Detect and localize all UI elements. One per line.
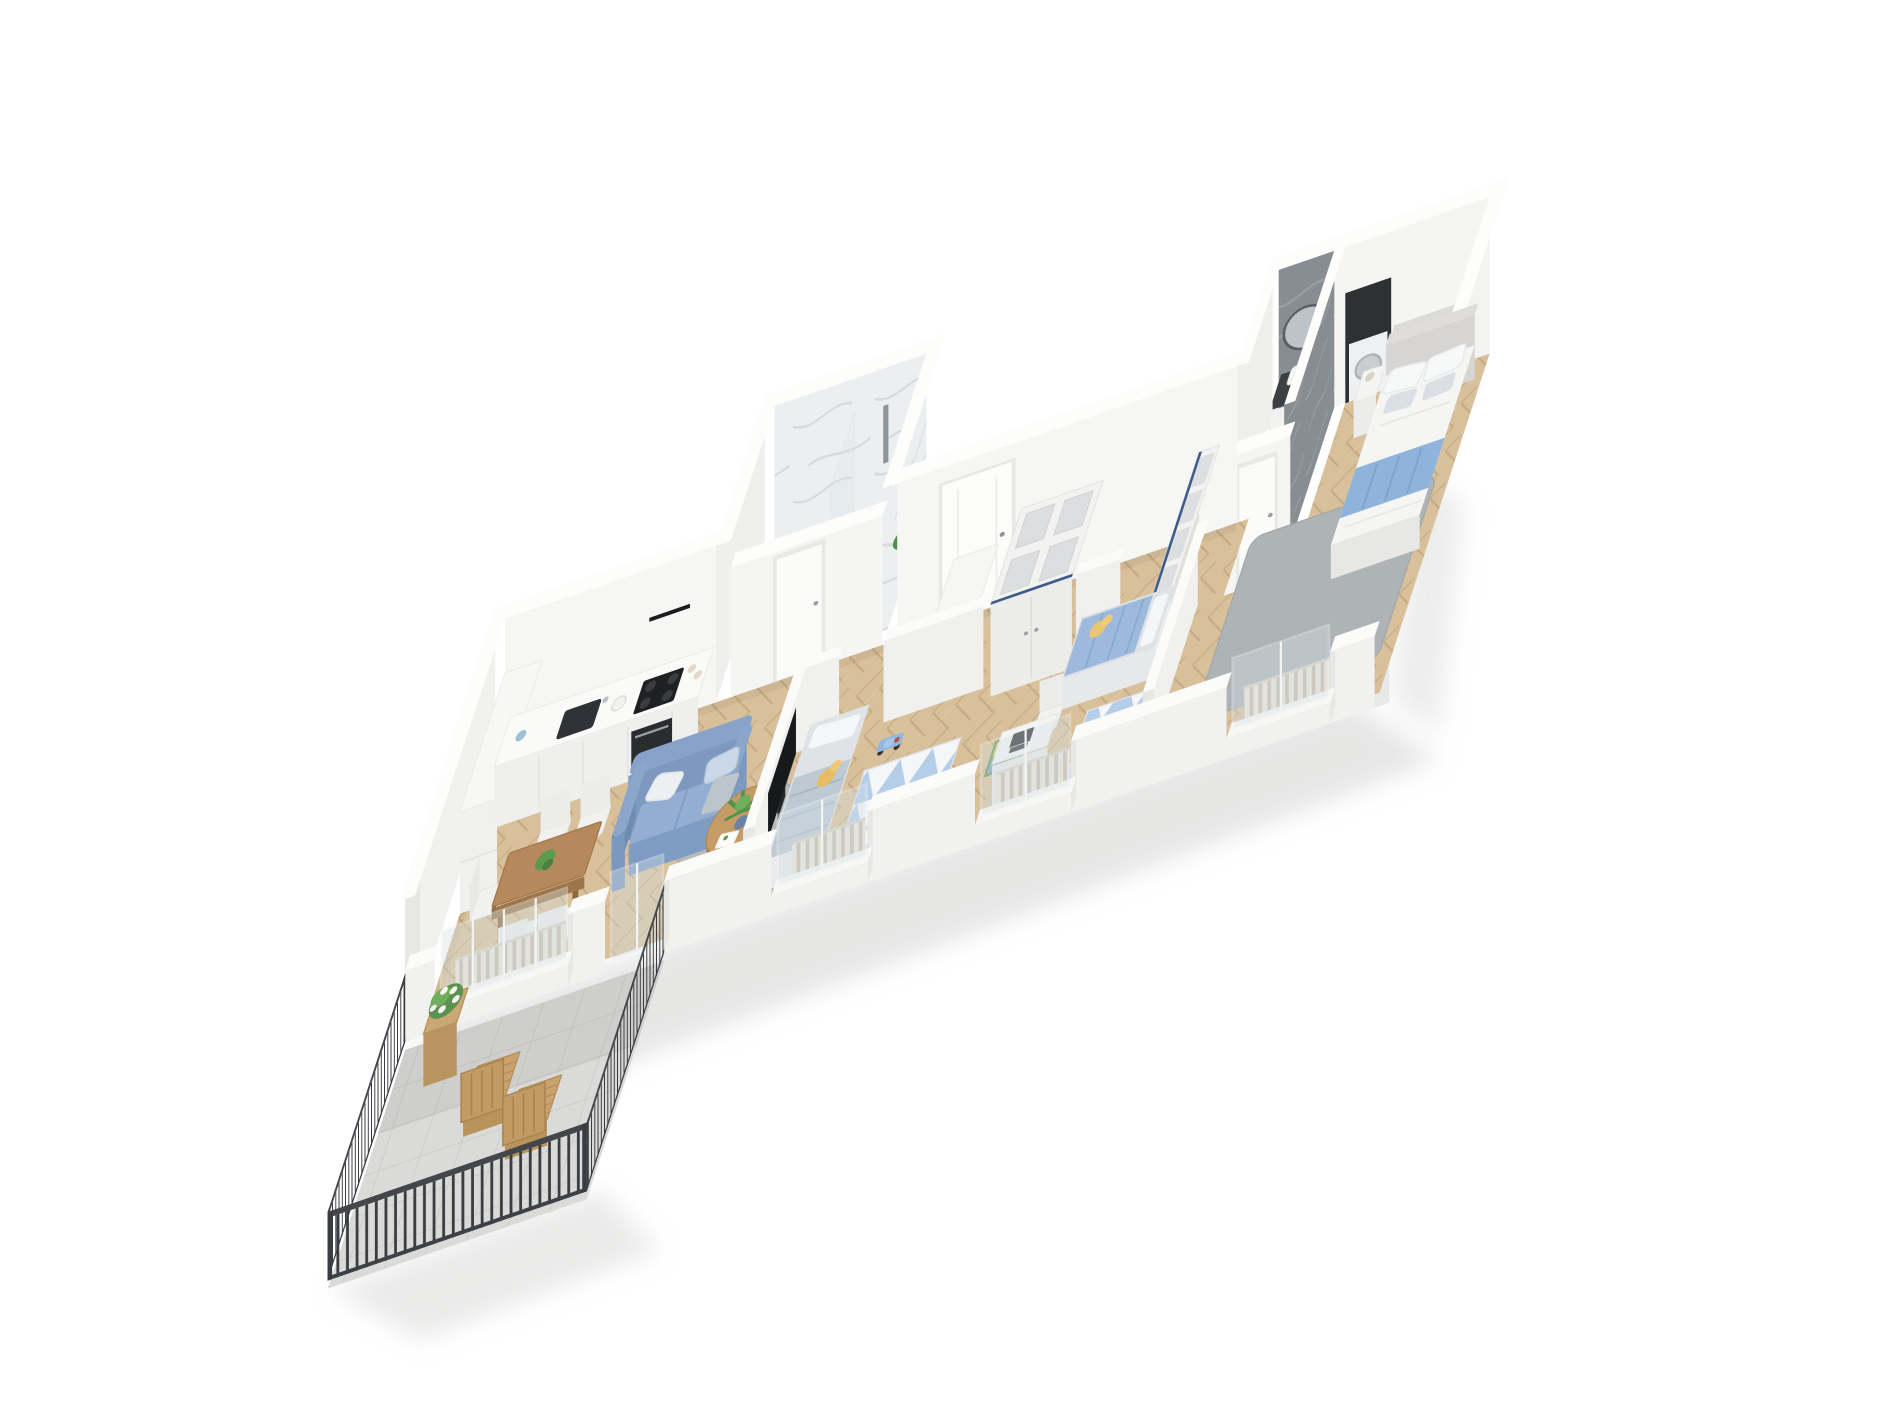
page: 3D isometric cutaway floor plan render o… [0, 0, 1900, 1425]
floorplan-render: 3D isometric cutaway floor plan render o… [0, 0, 1900, 1425]
shower-column [883, 404, 888, 464]
front-pier [1330, 636, 1374, 723]
front-pier [568, 902, 605, 986]
